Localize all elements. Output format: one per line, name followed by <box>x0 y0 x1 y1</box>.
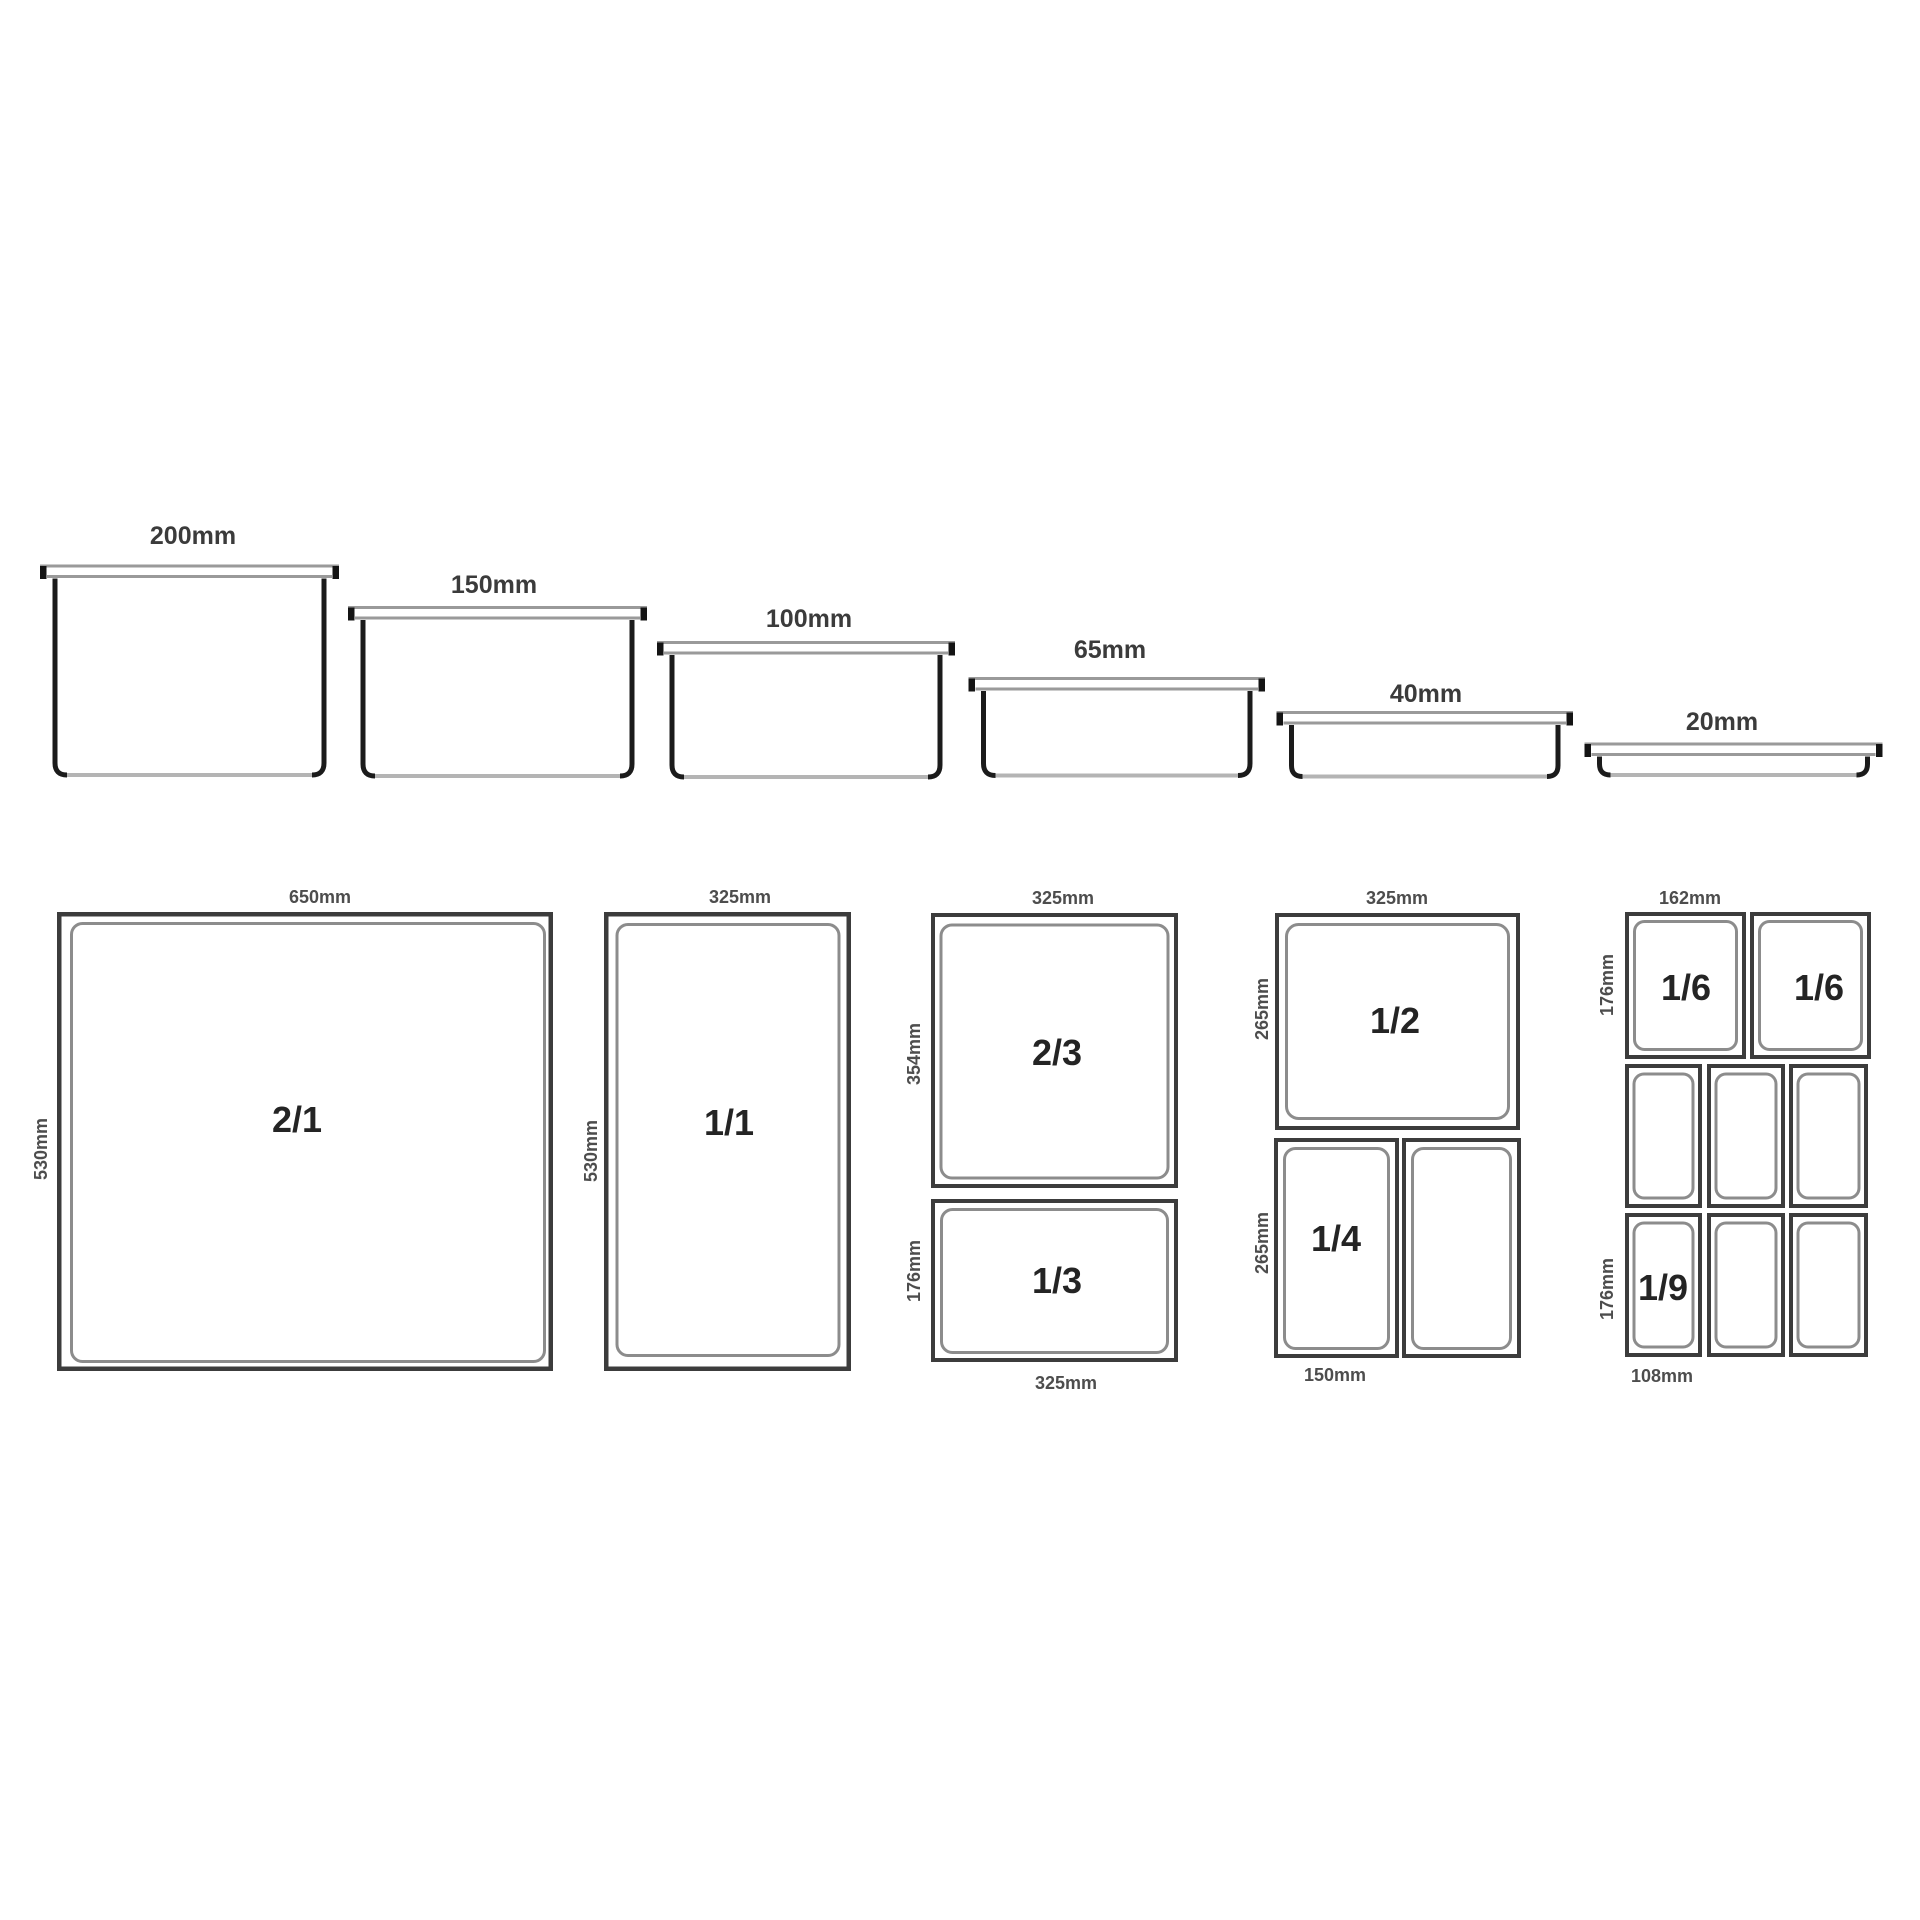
svg-text:200mm: 200mm <box>150 522 236 550</box>
svg-text:1/9: 1/9 <box>1638 1267 1688 1308</box>
svg-text:1/6: 1/6 <box>1661 967 1711 1008</box>
svg-text:325mm: 325mm <box>1366 888 1428 908</box>
svg-text:1/3: 1/3 <box>1032 1260 1082 1301</box>
svg-text:150mm: 150mm <box>1304 1365 1366 1385</box>
svg-text:1/2: 1/2 <box>1370 1000 1420 1041</box>
svg-text:176mm: 176mm <box>1597 1258 1617 1320</box>
svg-text:150mm: 150mm <box>451 571 537 599</box>
svg-text:2/1: 2/1 <box>272 1099 322 1140</box>
svg-text:1/4: 1/4 <box>1311 1218 1361 1259</box>
svg-text:1/1: 1/1 <box>704 1102 754 1143</box>
svg-text:265mm: 265mm <box>1252 978 1272 1040</box>
svg-text:20mm: 20mm <box>1686 708 1758 736</box>
svg-text:65mm: 65mm <box>1074 636 1146 664</box>
svg-text:40mm: 40mm <box>1390 680 1462 708</box>
svg-text:176mm: 176mm <box>904 1240 924 1302</box>
svg-text:265mm: 265mm <box>1252 1212 1272 1274</box>
svg-text:325mm: 325mm <box>1035 1373 1097 1393</box>
svg-text:354mm: 354mm <box>904 1023 924 1085</box>
svg-text:1/6: 1/6 <box>1794 967 1844 1008</box>
svg-text:530mm: 530mm <box>581 1120 601 1182</box>
svg-text:325mm: 325mm <box>1032 888 1094 908</box>
svg-text:650mm: 650mm <box>289 887 351 907</box>
svg-text:2/3: 2/3 <box>1032 1032 1082 1073</box>
svg-text:162mm: 162mm <box>1659 888 1721 908</box>
svg-text:530mm: 530mm <box>31 1118 51 1180</box>
svg-text:325mm: 325mm <box>709 887 771 907</box>
svg-text:176mm: 176mm <box>1597 954 1617 1016</box>
svg-text:100mm: 100mm <box>766 605 852 633</box>
svg-text:108mm: 108mm <box>1631 1366 1693 1386</box>
